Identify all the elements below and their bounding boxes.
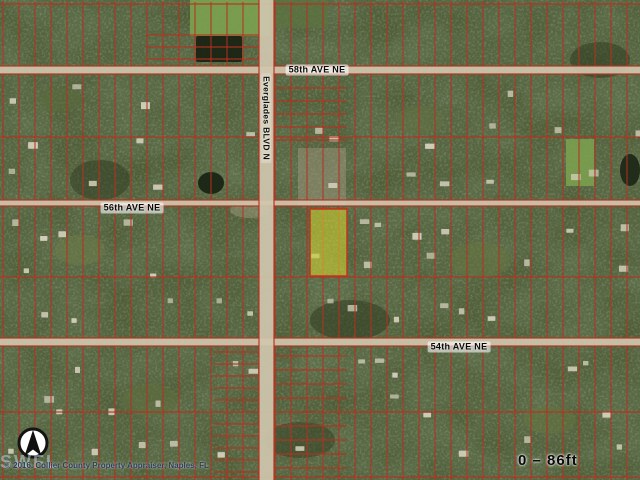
highlighted-parcel <box>310 209 347 276</box>
scale-label: 0 – 86ft <box>518 452 578 469</box>
road-label-ave-58: 58th AVE NE <box>286 65 349 76</box>
attribution-text: © 2016. Collier County Property Appraise… <box>5 461 209 470</box>
road-label-ave-56: 56th AVE NE <box>101 203 164 214</box>
road-label-ave-54: 54th AVE NE <box>428 342 491 353</box>
road-label-everglades-blvd: Everglades BLVD N <box>261 73 272 163</box>
property-aerial-map: SWFL © 2016. Collier County Property App… <box>0 0 640 480</box>
